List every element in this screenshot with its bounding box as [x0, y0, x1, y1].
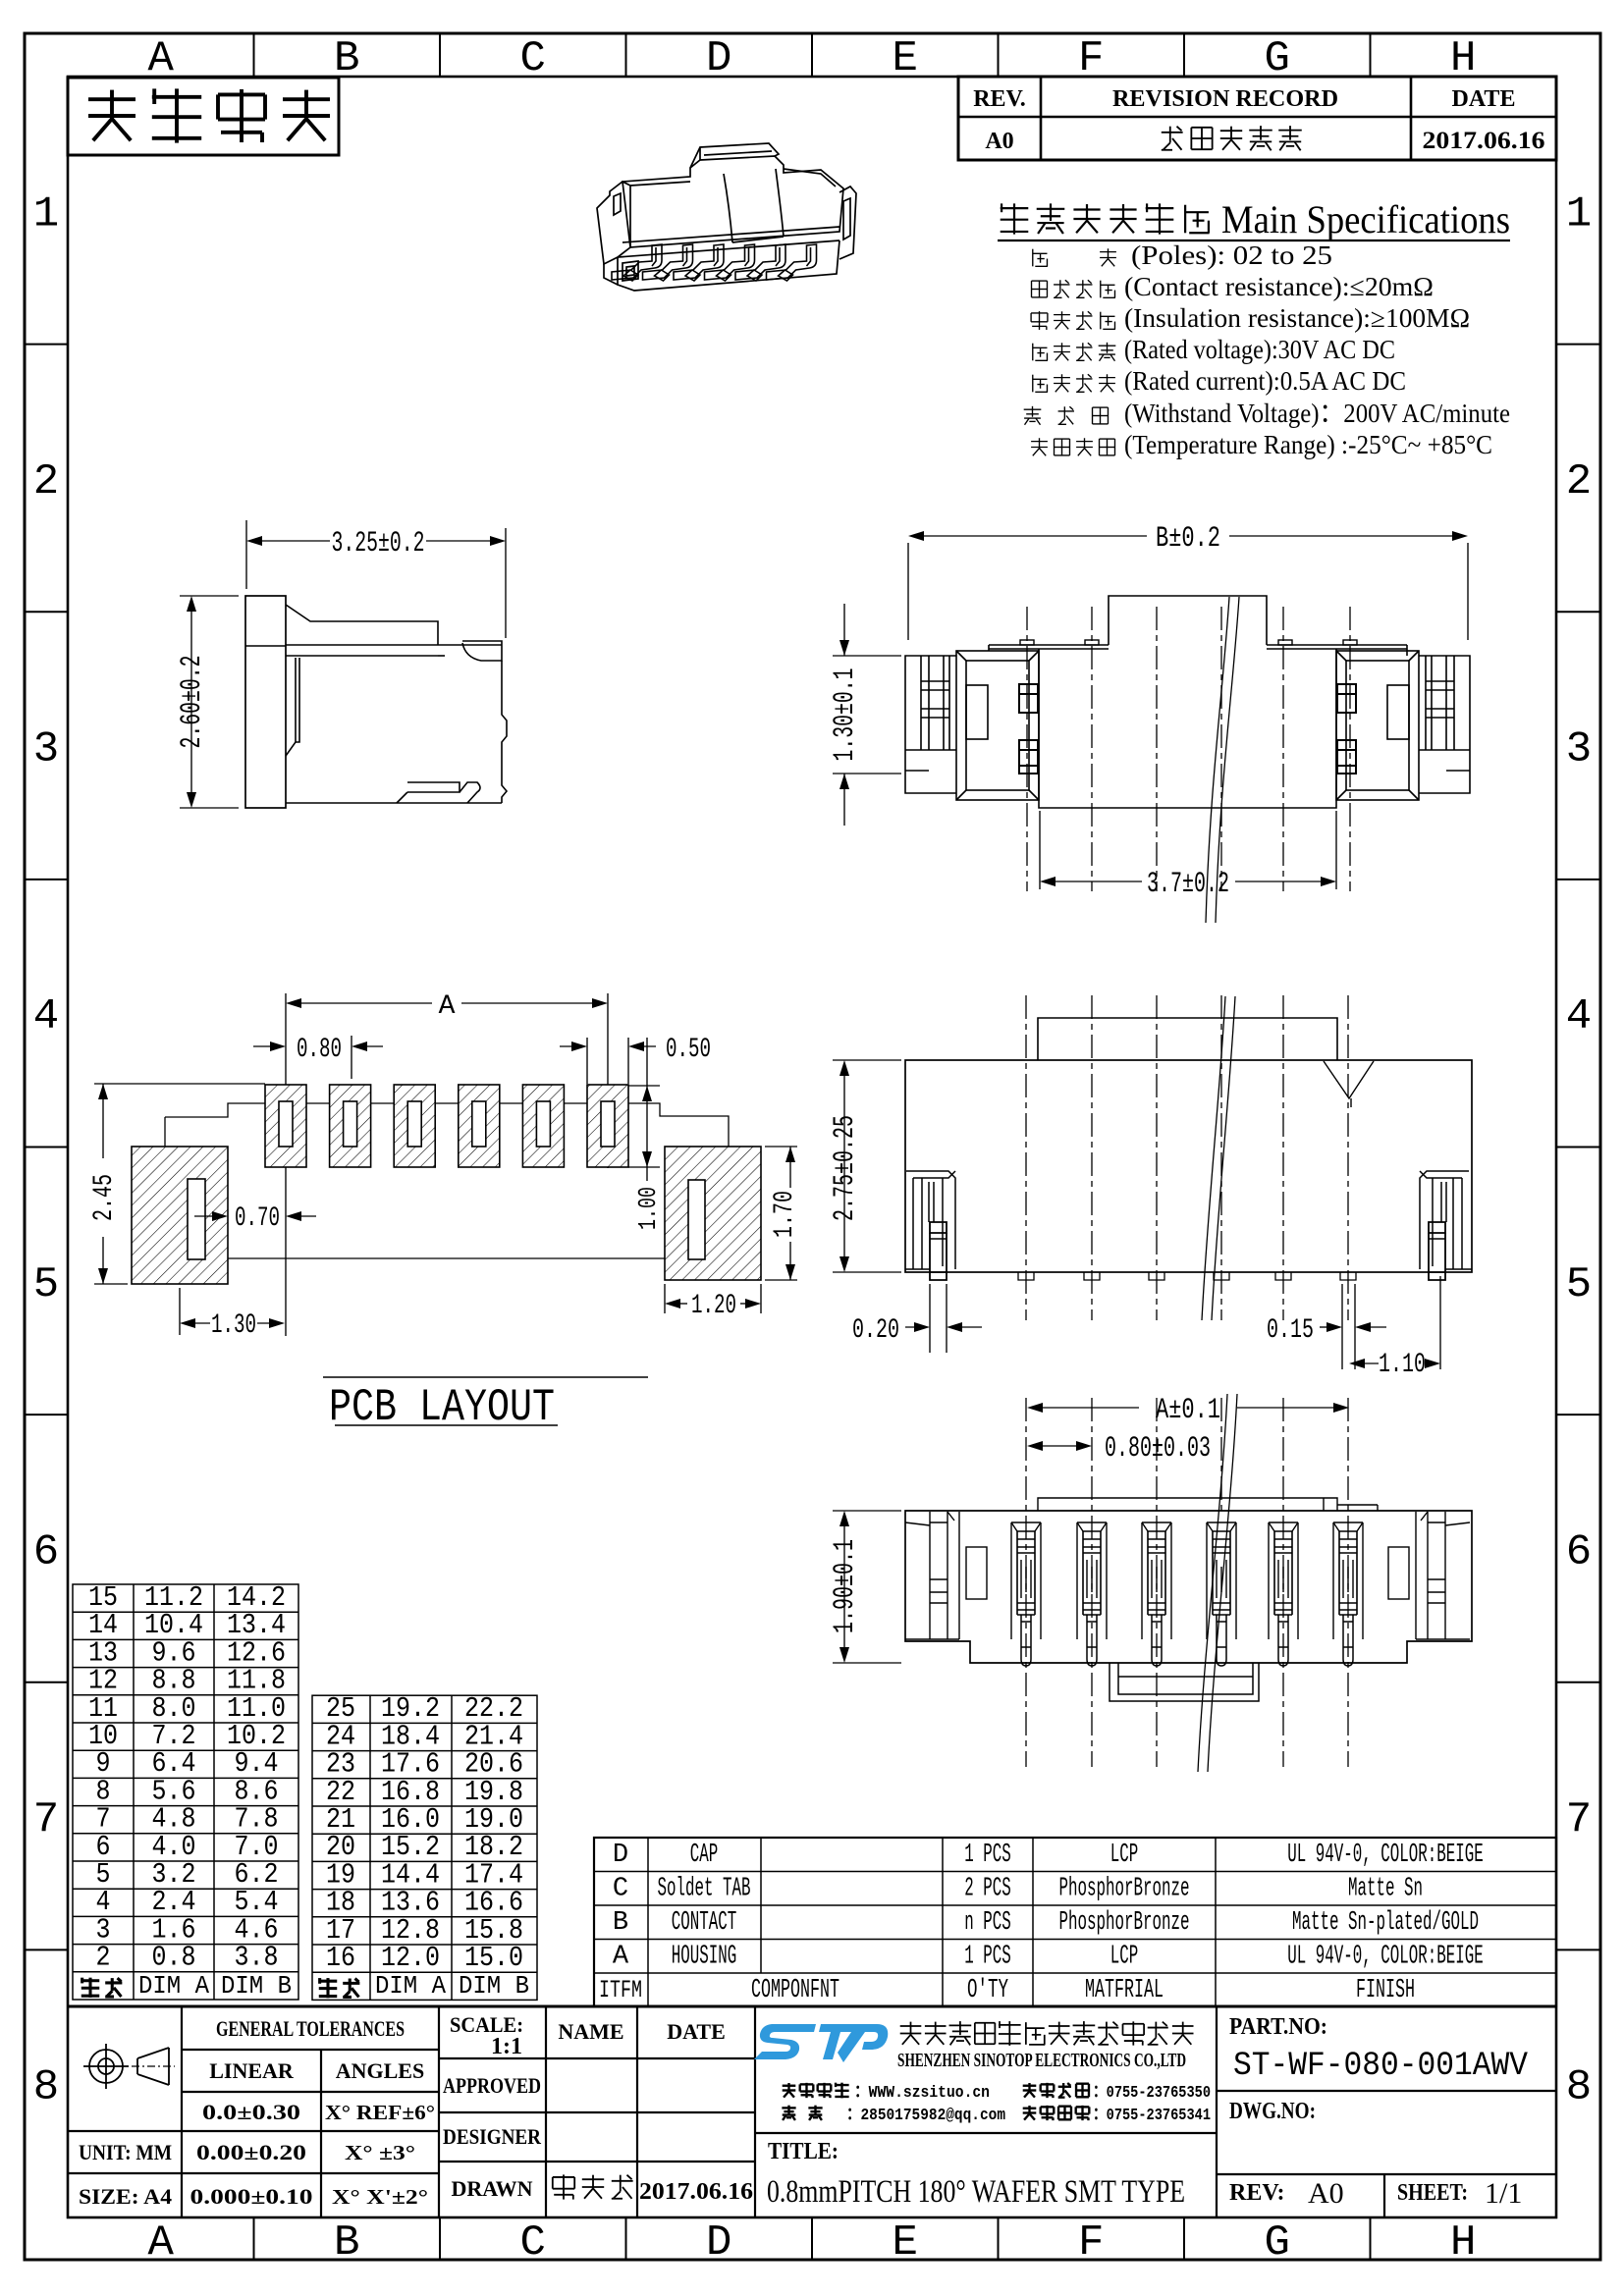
- svg-text:1:1: 1:1: [491, 2034, 522, 2059]
- svg-text:GENERAL TOLERANCES: GENERAL TOLERANCES: [216, 2016, 405, 2041]
- svg-text:REV:: REV:: [1229, 2180, 1284, 2206]
- svg-text:DATE: DATE: [1452, 86, 1516, 112]
- svg-text:X° ±3°: X° ±3°: [345, 2141, 415, 2164]
- svg-text:2017.06.16: 2017.06.16: [1423, 128, 1545, 154]
- svg-text:PhosphorBronze: PhosphorBronze: [1059, 1875, 1190, 1904]
- svg-text:0.70: 0.70: [235, 1203, 280, 1234]
- svg-text:：0755-23765350: ：0755-23765350: [1093, 2084, 1211, 2103]
- svg-text:n PCS: n PCS: [964, 1908, 1011, 1938]
- svg-text:(Contact resistance):≤20mΩ: (Contact resistance):≤20mΩ: [1124, 272, 1434, 301]
- svg-text:1.30: 1.30: [211, 1310, 256, 1341]
- svg-text:D: D: [706, 2218, 731, 2268]
- svg-text:SIZE: A4: SIZE: A4: [79, 2184, 172, 2209]
- svg-text:H: H: [1450, 2218, 1476, 2268]
- svg-text:CONTACT: CONTACT: [672, 1908, 737, 1938]
- svg-text:1.70: 1.70: [770, 1191, 800, 1238]
- svg-text:1: 1: [1566, 189, 1592, 239]
- svg-text:2.60±0.2: 2.60±0.2: [176, 656, 209, 749]
- svg-text:CAP: CAP: [690, 1841, 719, 1870]
- svg-text:0.000±0.10: 0.000±0.10: [190, 2184, 313, 2209]
- svg-text:E: E: [893, 2218, 918, 2268]
- svg-text:16: 16: [326, 1942, 355, 1974]
- svg-text:E: E: [893, 34, 918, 83]
- svg-text:A0: A0: [1308, 2177, 1344, 2210]
- svg-text:1 PCS: 1 PCS: [964, 1943, 1011, 1972]
- svg-text:6: 6: [33, 1527, 59, 1576]
- svg-text:B: B: [334, 2218, 359, 2268]
- svg-text:DIM B: DIM B: [459, 1971, 529, 2001]
- svg-text:(Temperature Range) :-25°C~ +8: (Temperature Range) :-25°C~ +85°C: [1124, 430, 1492, 459]
- svg-text:4: 4: [1566, 992, 1592, 1041]
- svg-text:7: 7: [1566, 1795, 1592, 1844]
- svg-text:2: 2: [33, 457, 59, 507]
- svg-text:TITLE:: TITLE:: [768, 2139, 839, 2164]
- svg-text:APPROVED: APPROVED: [443, 2073, 541, 2098]
- svg-text:C: C: [520, 2218, 546, 2268]
- svg-text:1: 1: [33, 189, 59, 239]
- svg-text:1 PCS: 1 PCS: [964, 1841, 1011, 1870]
- svg-text:0.8: 0.8: [152, 1942, 196, 1974]
- svg-text:X° REF±6°: X° REF±6°: [325, 2101, 435, 2124]
- svg-text:ITFM: ITFM: [599, 1976, 642, 2004]
- svg-text:1.00: 1.00: [633, 1187, 663, 1230]
- svg-text:REV.: REV.: [973, 86, 1026, 112]
- svg-text:LCP: LCP: [1110, 1841, 1139, 1870]
- svg-text:DWG.NO:: DWG.NO:: [1229, 2099, 1316, 2124]
- svg-text:4: 4: [33, 992, 59, 1041]
- svg-text:A: A: [613, 1943, 629, 1972]
- svg-text:REVISION RECORD: REVISION RECORD: [1112, 86, 1338, 112]
- svg-text:0.50: 0.50: [666, 1035, 711, 1065]
- svg-text:1/1: 1/1: [1485, 2177, 1522, 2210]
- svg-text:A0: A0: [985, 129, 1013, 154]
- svg-text:D: D: [706, 34, 731, 83]
- svg-text:F: F: [1078, 2218, 1104, 2268]
- svg-text:2: 2: [96, 1942, 111, 1974]
- svg-text:3.8: 3.8: [235, 1942, 279, 1974]
- svg-text:ST-WF-080-001AWV: ST-WF-080-001AWV: [1233, 2048, 1529, 2085]
- svg-text:D: D: [613, 1841, 628, 1870]
- svg-text:Matte Sn-plated/GOLD: Matte Sn-plated/GOLD: [1292, 1908, 1479, 1938]
- svg-text:FINISH: FINISH: [1356, 1976, 1415, 2005]
- svg-text:0.00±0.20: 0.00±0.20: [196, 2140, 306, 2164]
- svg-text:8: 8: [33, 2063, 59, 2112]
- svg-text:5: 5: [33, 1260, 59, 1309]
- svg-text:A±0.1: A±0.1: [1156, 1394, 1220, 1427]
- svg-text:UL 94V-0, COLOR:BEIGE: UL 94V-0, COLOR:BEIGE: [1287, 1943, 1484, 1972]
- svg-text:HOUSING: HOUSING: [672, 1943, 737, 1972]
- svg-text:1.20: 1.20: [691, 1291, 736, 1321]
- svg-text:Main Specifications: Main Specifications: [1221, 197, 1510, 241]
- svg-text:：2850175982@qq.com: ：2850175982@qq.com: [846, 2107, 1005, 2125]
- svg-text:(Poles): 02 to 25: (Poles): 02 to 25: [1131, 240, 1332, 270]
- svg-text:3: 3: [33, 725, 59, 774]
- svg-text:G: G: [1265, 2218, 1290, 2268]
- svg-text:LINEAR: LINEAR: [209, 2058, 295, 2083]
- svg-text:PART.NO:: PART.NO:: [1229, 2014, 1327, 2040]
- svg-text:8: 8: [1566, 2063, 1592, 2112]
- svg-text:NAME: NAME: [558, 2019, 623, 2044]
- svg-text:5: 5: [1566, 1260, 1592, 1309]
- svg-text:2 PCS: 2 PCS: [964, 1875, 1011, 1904]
- svg-text:：0755-23765341: ：0755-23765341: [1093, 2107, 1211, 2125]
- svg-text:UL 94V-0, COLOR:BEIGE: UL 94V-0, COLOR:BEIGE: [1287, 1841, 1484, 1870]
- svg-text:PhosphorBronze: PhosphorBronze: [1059, 1908, 1190, 1938]
- svg-text:C: C: [613, 1875, 628, 1904]
- svg-text:DATE: DATE: [667, 2019, 726, 2044]
- svg-text:X° X'±2°: X° X'±2°: [332, 2185, 428, 2209]
- svg-text:：WWW.szsituo.cn: ：WWW.szsituo.cn: [854, 2084, 990, 2103]
- svg-text:DIM B: DIM B: [221, 1971, 292, 2001]
- svg-text:A: A: [148, 2218, 175, 2268]
- svg-text:(Insulation resistance):≥100MΩ: (Insulation resistance):≥100MΩ: [1124, 303, 1470, 333]
- svg-text:6: 6: [1566, 1527, 1592, 1576]
- svg-text:7: 7: [33, 1795, 59, 1844]
- svg-text:DRAWN: DRAWN: [451, 2176, 532, 2201]
- svg-text:COMPONFNT: COMPONFNT: [751, 1976, 839, 2005]
- svg-text:2.45: 2.45: [89, 1174, 120, 1221]
- svg-text:ANGLES: ANGLES: [336, 2058, 424, 2083]
- svg-text:SHEET:: SHEET:: [1397, 2180, 1468, 2206]
- svg-text:UNIT: MM: UNIT: MM: [79, 2140, 172, 2164]
- svg-text:15.0: 15.0: [464, 1942, 523, 1974]
- svg-text:(Rated current):0.5A AC DC: (Rated current):0.5A AC DC: [1124, 366, 1406, 396]
- svg-text:B: B: [613, 1908, 628, 1938]
- svg-text:2: 2: [1566, 457, 1592, 507]
- svg-text:12.0: 12.0: [381, 1942, 440, 1974]
- svg-text:DIM A: DIM A: [138, 1971, 209, 2001]
- svg-text:3: 3: [1566, 725, 1592, 774]
- svg-text:0.15: 0.15: [1267, 1315, 1314, 1346]
- svg-text:(Rated voltage):30V AC DC: (Rated voltage):30V AC DC: [1124, 335, 1395, 364]
- svg-text:0.8mmPITCH 180° WAFER SMT TYPE: 0.8mmPITCH 180° WAFER SMT TYPE: [767, 2174, 1185, 2210]
- svg-text:0.20: 0.20: [852, 1315, 899, 1346]
- svg-text:Matte Sn: Matte Sn: [1348, 1875, 1423, 1904]
- svg-text:0.80±0.03: 0.80±0.03: [1105, 1432, 1211, 1466]
- svg-text:2.75±0.25: 2.75±0.25: [829, 1115, 862, 1221]
- svg-text:(Withstand Voltage)：200V AC/mi: (Withstand Voltage)：200V AC/minute: [1124, 399, 1510, 428]
- svg-text:DIM A: DIM A: [375, 1971, 446, 2001]
- svg-text:1.30±0.1: 1.30±0.1: [829, 668, 862, 762]
- svg-text:O'TY: O'TY: [967, 1976, 1008, 2005]
- svg-text:Soldet TAB: Soldet TAB: [658, 1875, 751, 1904]
- svg-text:0.0±0.30: 0.0±0.30: [202, 2100, 300, 2124]
- svg-text:2017.06.16: 2017.06.16: [639, 2179, 753, 2205]
- svg-text:LCP: LCP: [1110, 1943, 1139, 1972]
- svg-text:A: A: [439, 991, 456, 1022]
- svg-text:C: C: [520, 34, 546, 83]
- svg-text:1.90±0.1: 1.90±0.1: [829, 1539, 862, 1633]
- svg-text:MATFRIAL: MATFRIAL: [1085, 1976, 1164, 2005]
- svg-text:1.10: 1.10: [1379, 1350, 1426, 1380]
- svg-text:3.25±0.2: 3.25±0.2: [332, 527, 425, 561]
- svg-text:0.80: 0.80: [297, 1035, 342, 1065]
- svg-text:DESIGNER: DESIGNER: [443, 2124, 542, 2149]
- svg-text:SHENZHEN SINOTOP ELECTRONICS C: SHENZHEN SINOTOP ELECTRONICS CO.,LTD: [897, 2050, 1186, 2071]
- svg-text:B±0.2: B±0.2: [1156, 522, 1220, 556]
